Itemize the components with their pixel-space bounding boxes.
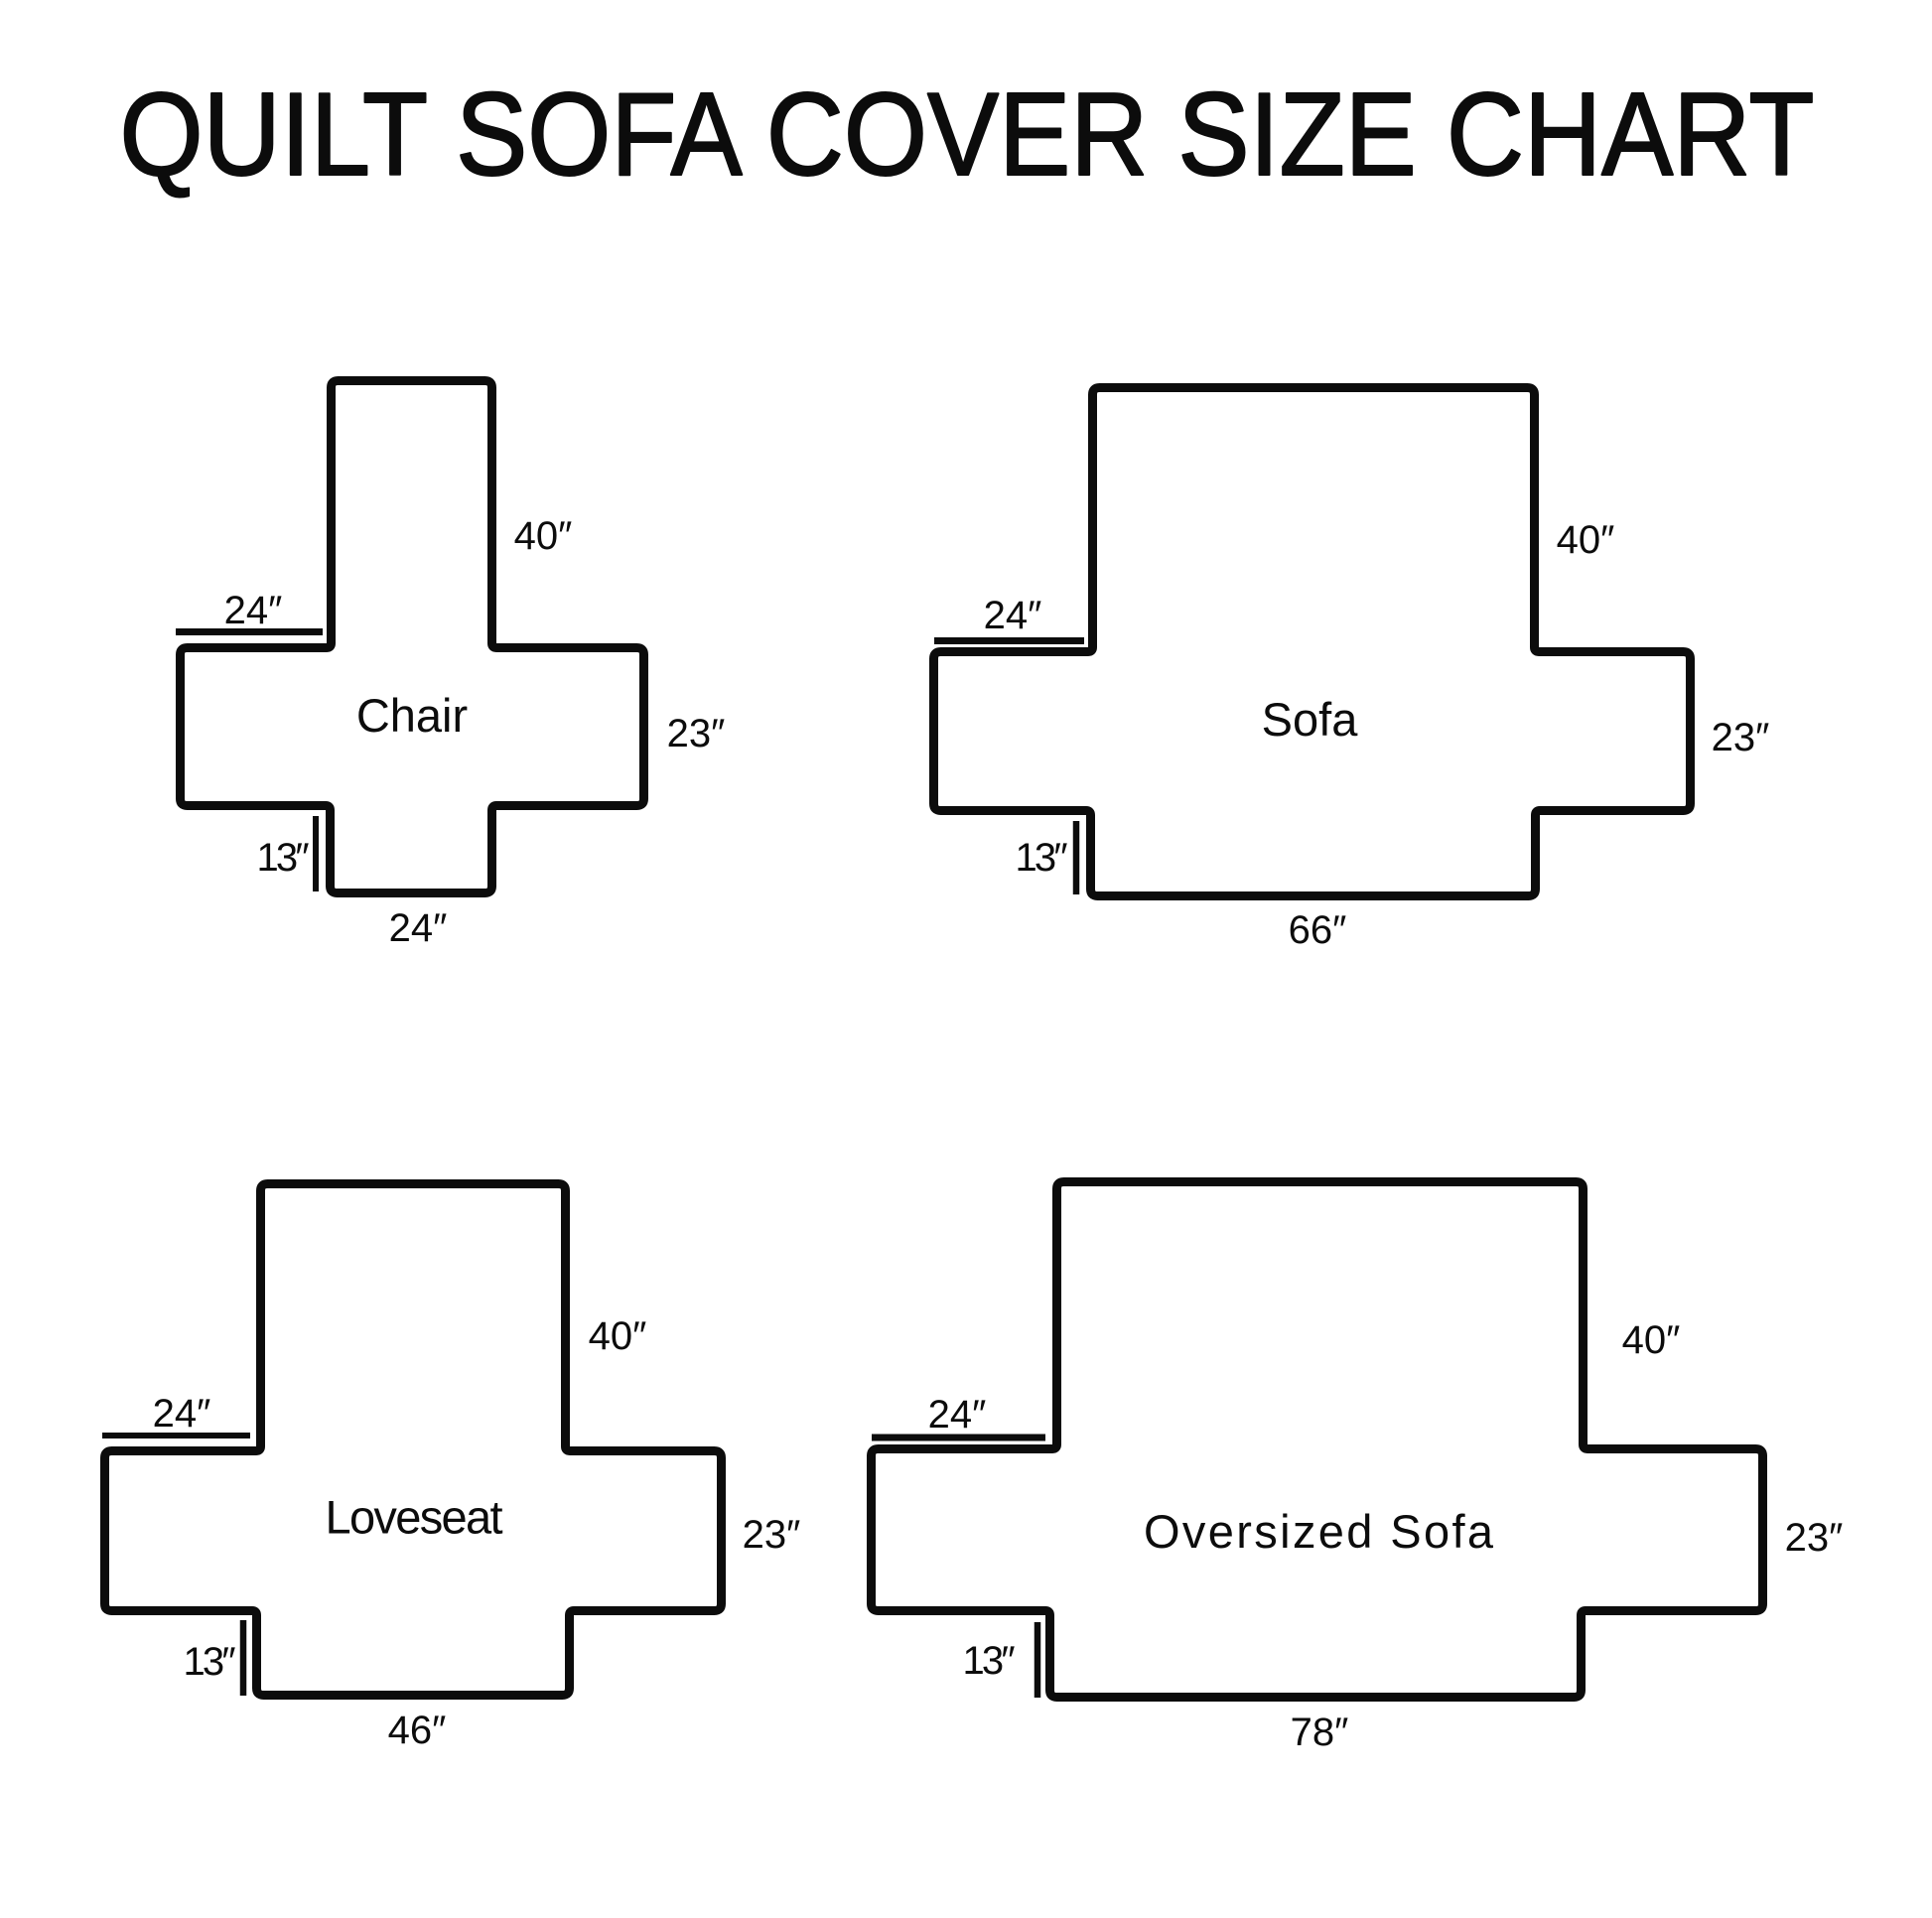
svg-text:40″: 40″: [589, 1314, 647, 1358]
svg-text:Loveseat: Loveseat: [326, 1491, 503, 1544]
svg-text:24″: 24″: [984, 594, 1042, 637]
svg-text:23″: 23″: [667, 712, 726, 755]
svg-text:40″: 40″: [514, 514, 573, 558]
svg-text:24″: 24″: [389, 906, 448, 950]
svg-text:40″: 40″: [1622, 1318, 1681, 1362]
svg-text:Sofa: Sofa: [1262, 693, 1359, 746]
svg-text:24″: 24″: [224, 589, 283, 632]
svg-text:66″: 66″: [1289, 908, 1347, 952]
svg-text:24″: 24″: [928, 1393, 987, 1437]
svg-text:QUILT SOFA COVER SIZE CHART: QUILT SOFA COVER SIZE CHART: [120, 68, 1815, 201]
svg-text:78″: 78″: [1291, 1711, 1349, 1754]
svg-text:40″: 40″: [1557, 518, 1615, 562]
svg-text:13″: 13″: [1016, 836, 1068, 880]
svg-text:Oversized Sofa: Oversized Sofa: [1144, 1505, 1494, 1558]
svg-text:46″: 46″: [388, 1709, 447, 1752]
svg-text:23″: 23″: [1785, 1516, 1844, 1560]
svg-text:23″: 23″: [1712, 716, 1770, 759]
svg-text:Chair: Chair: [356, 689, 468, 742]
svg-text:13″: 13″: [184, 1640, 236, 1684]
svg-text:23″: 23″: [743, 1513, 801, 1557]
svg-text:13″: 13″: [257, 836, 310, 880]
svg-text:13″: 13″: [963, 1639, 1016, 1683]
svg-text:24″: 24″: [153, 1392, 211, 1436]
